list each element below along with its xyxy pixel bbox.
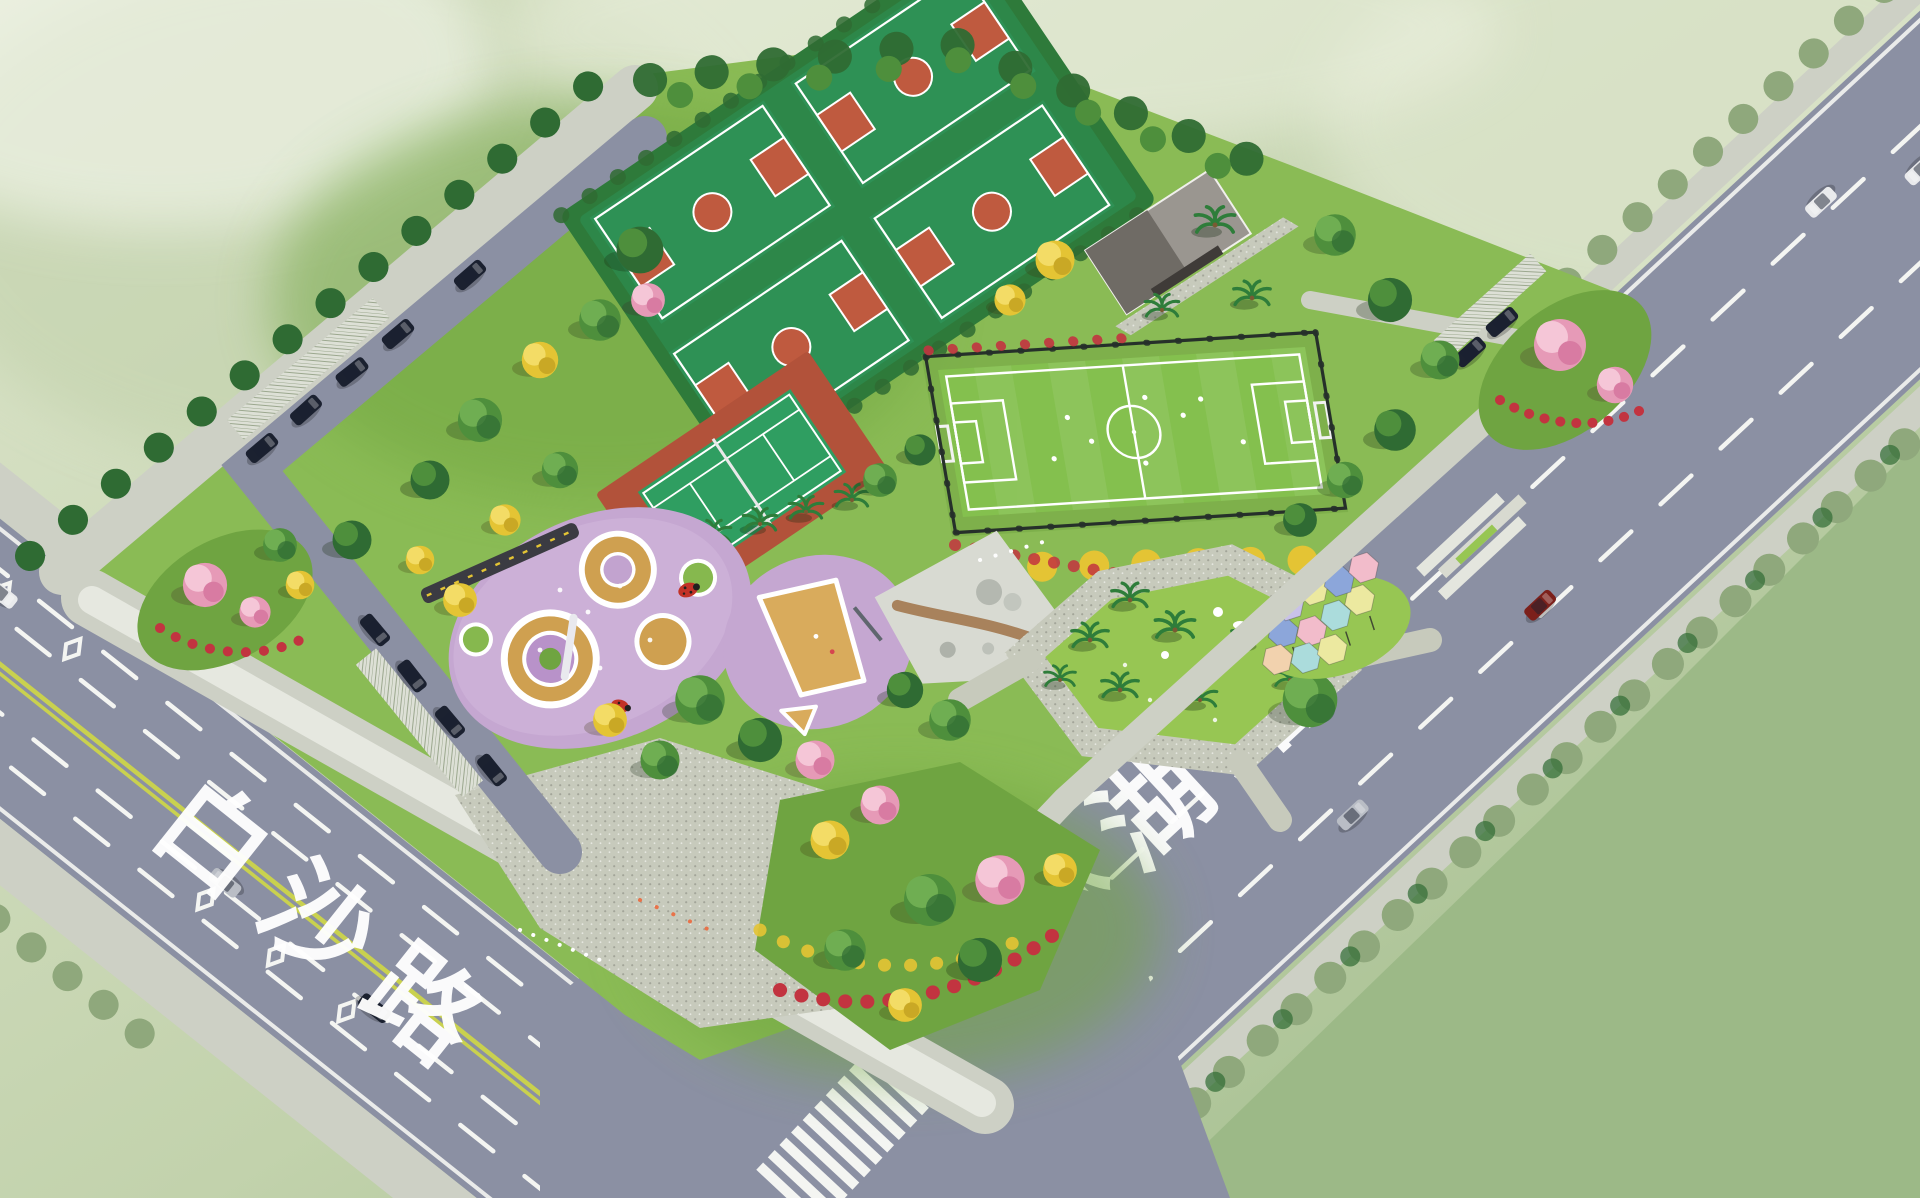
park-masterplan-rendering: 白沙路 林湖路: [0, 0, 1920, 1198]
